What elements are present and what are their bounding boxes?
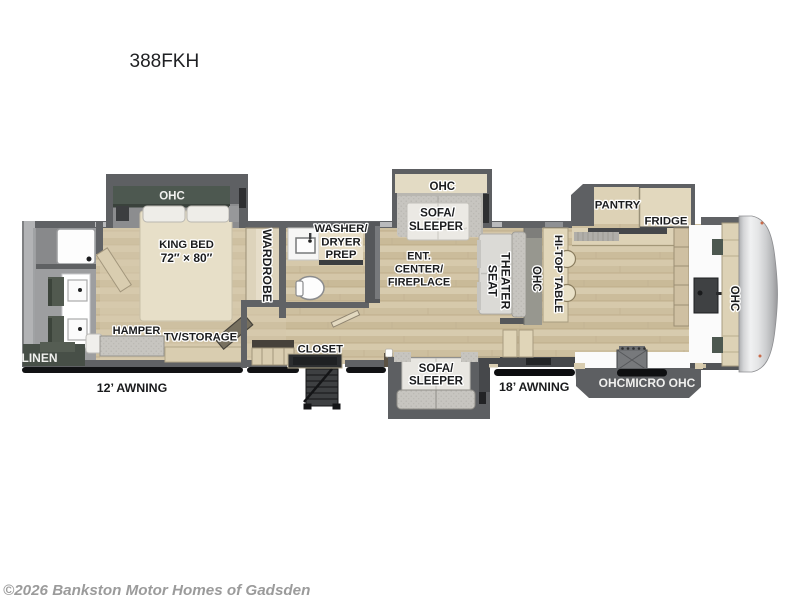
- svg-text:THEATER: THEATER: [499, 252, 513, 309]
- svg-text:388FKH: 388FKH: [130, 51, 200, 72]
- svg-text:OHCMICRO OHC: OHCMICRO OHC: [599, 376, 696, 390]
- svg-text:72″ × 80″: 72″ × 80″: [161, 251, 213, 265]
- svg-text:HI-TOP TABLE: HI-TOP TABLE: [552, 235, 564, 313]
- svg-text:CLOSET: CLOSET: [298, 343, 344, 355]
- svg-text:WASHER/: WASHER/: [314, 223, 368, 235]
- svg-text:DRYER: DRYER: [321, 237, 360, 249]
- svg-text:HAMPER: HAMPER: [113, 325, 161, 337]
- svg-text:TV/STORAGE: TV/STORAGE: [164, 332, 238, 344]
- svg-text:CENTER/: CENTER/: [395, 264, 443, 276]
- svg-text:PREP: PREP: [325, 249, 356, 261]
- svg-text:ENT.: ENT.: [407, 251, 431, 263]
- svg-text:SOFA/: SOFA/: [419, 362, 455, 375]
- svg-text:FIREPLACE: FIREPLACE: [388, 277, 450, 289]
- svg-text:PANTRY: PANTRY: [595, 200, 641, 212]
- svg-text:FRIDGE: FRIDGE: [644, 216, 687, 228]
- svg-text:SOFA/: SOFA/: [420, 207, 456, 220]
- svg-text:SLEEPER: SLEEPER: [409, 375, 464, 388]
- svg-text:OHC: OHC: [159, 191, 185, 203]
- svg-text:KING BED: KING BED: [159, 239, 214, 251]
- svg-text:OHC: OHC: [530, 266, 542, 292]
- svg-text:LINEN: LINEN: [22, 351, 58, 365]
- svg-text:18’ AWNING: 18’ AWNING: [499, 380, 569, 394]
- svg-text:WARDROBE: WARDROBE: [260, 229, 274, 302]
- svg-text:OHC: OHC: [430, 181, 456, 193]
- svg-text:OHC: OHC: [728, 286, 740, 312]
- svg-text:12’ AWNING: 12’ AWNING: [97, 381, 167, 395]
- svg-text:©2026 Bankston Motor Homes of: ©2026 Bankston Motor Homes of Gadsden: [3, 582, 310, 599]
- svg-text:SLEEPER: SLEEPER: [409, 220, 464, 233]
- svg-text:SEAT: SEAT: [485, 265, 499, 297]
